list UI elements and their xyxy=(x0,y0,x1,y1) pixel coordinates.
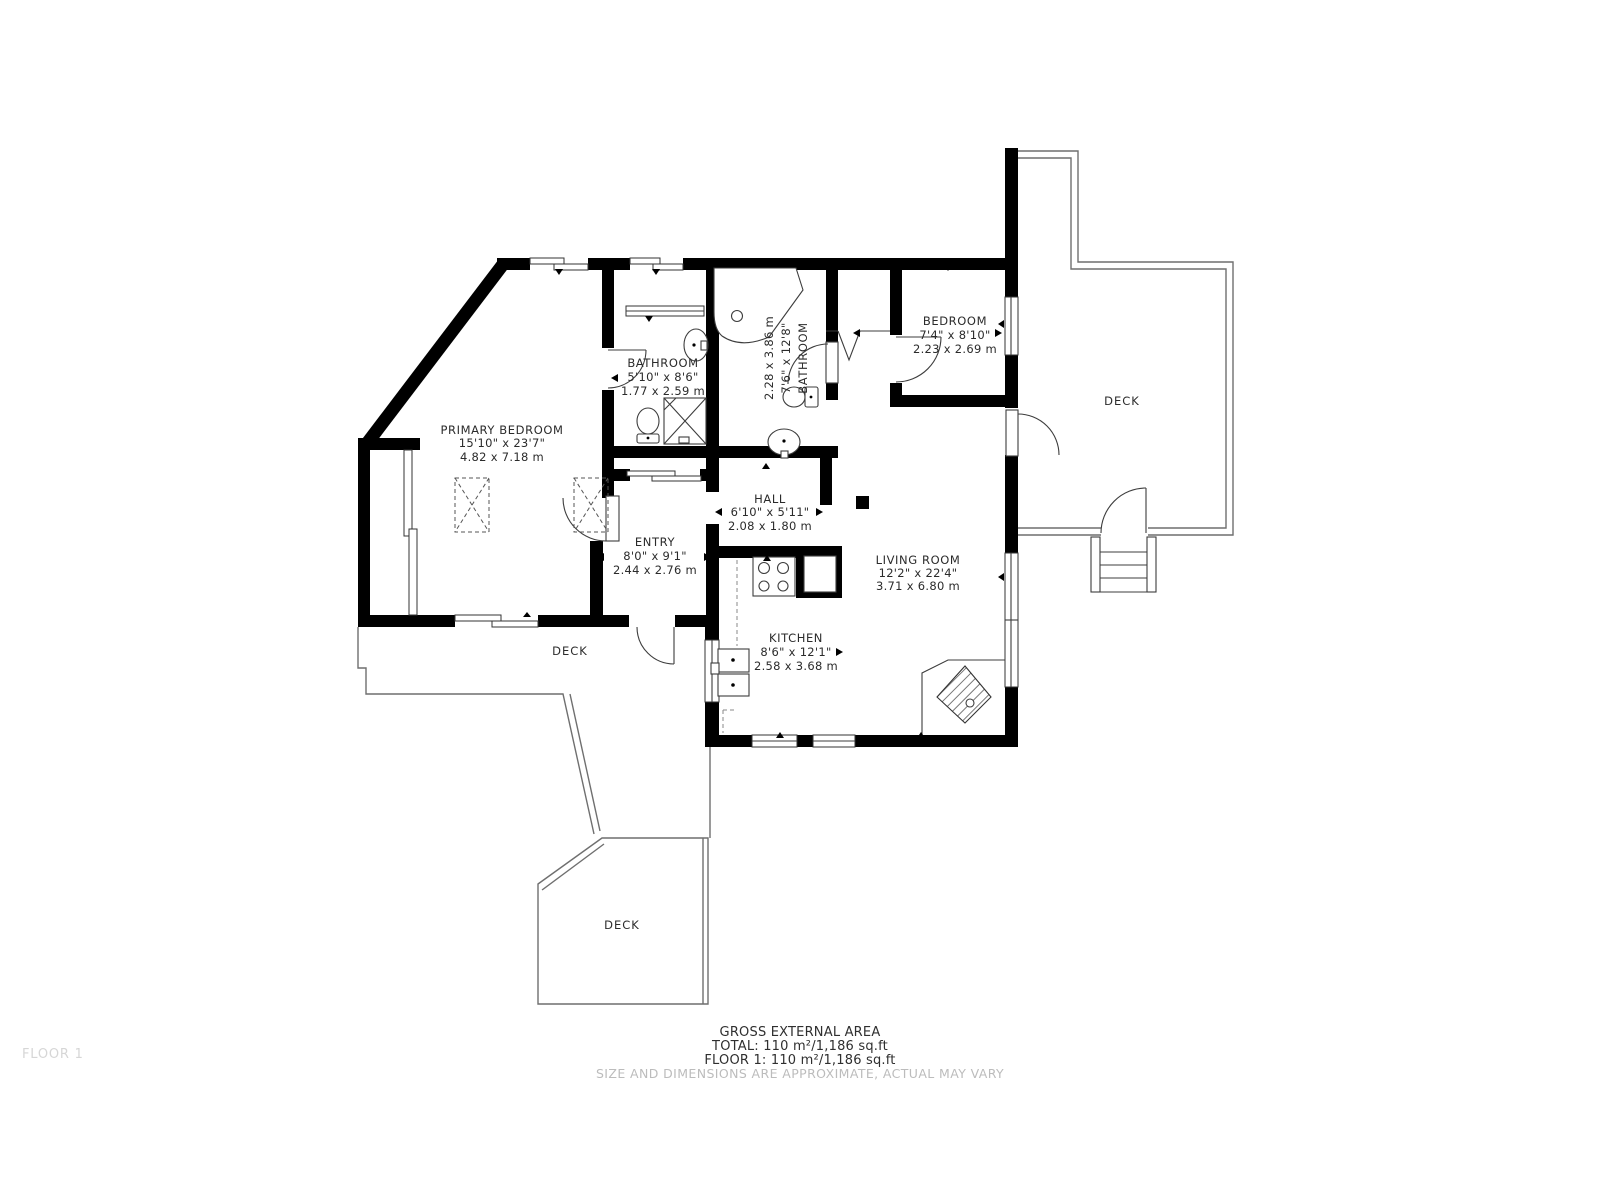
room-dims-kitchen: 8'6" x 12'1" xyxy=(760,645,831,659)
window-primary-top xyxy=(530,258,588,270)
window-primary-west-bay xyxy=(404,450,417,615)
room-label-primary-bedroom: PRIMARY BEDROOM xyxy=(440,423,563,437)
shower-icon xyxy=(664,398,706,444)
room-metric-kitchen: 2.58 x 3.68 m xyxy=(754,659,838,673)
footer-disclaimer: SIZE AND DIMENSIONS ARE APPROXIMATE, ACT… xyxy=(596,1066,1004,1081)
room-dims-primary-bedroom: 15'10" x 23'7" xyxy=(459,436,545,450)
deck-gate-door xyxy=(1101,488,1146,533)
room-label-hall: HALL xyxy=(754,492,786,506)
door-primary-bedroom xyxy=(563,496,619,541)
room-label-bathroom2: BATHROOM xyxy=(796,322,810,393)
deck-label-middle: DECK xyxy=(552,644,588,658)
stove-icon xyxy=(753,557,795,596)
window-kitchen-south-1 xyxy=(752,735,797,747)
footer-area-summary: GROSS EXTERNAL AREA TOTAL: 110 m²/1,186 … xyxy=(596,1025,1004,1081)
room-metric-primary-bedroom: 4.82 x 7.18 m xyxy=(460,450,544,464)
room-label-living-room: LIVING ROOM xyxy=(876,553,961,567)
shower-partition-icon xyxy=(626,306,704,316)
toilet-icon xyxy=(637,408,659,443)
deck-label-lower: DECK xyxy=(604,918,640,932)
window-kitchen-south-2 xyxy=(813,735,855,747)
fireplace xyxy=(922,660,1005,735)
room-metric-entry: 2.44 x 2.76 m xyxy=(613,563,697,577)
door-entry-to-deck xyxy=(637,627,674,664)
door-living-to-deck xyxy=(1006,410,1059,456)
closet-icon xyxy=(574,478,608,532)
room-dims-hall: 6'10" x 5'11" xyxy=(731,505,810,519)
room-dims-bedroom: 7'4" x 8'10" xyxy=(919,328,990,342)
chimney-column xyxy=(856,496,869,509)
room-label-bathroom1: BATHROOM xyxy=(627,356,698,370)
deck-stairs xyxy=(1091,537,1156,592)
room-metric-bathroom1: 1.77 x 2.59 m xyxy=(621,384,705,398)
sliding-door-entry xyxy=(627,471,701,481)
window-bathroom-top xyxy=(630,258,683,270)
room-label-bedroom: BEDROOM xyxy=(923,314,987,328)
window-bedroom-east xyxy=(1005,297,1018,355)
room-dims-bathroom1: 5'10" x 8'6" xyxy=(627,370,698,384)
deck-middle-outline xyxy=(358,627,710,838)
window-living-east xyxy=(1005,553,1018,687)
room-label-entry: ENTRY xyxy=(635,535,676,549)
floor-tag: FLOOR 1 xyxy=(22,1047,84,1062)
floorplan-page: PRIMARY BEDROOM 15'10" x 23'7" 4.82 x 7.… xyxy=(0,0,1600,1200)
primary-bedroom-closets xyxy=(455,478,608,532)
counter-outline xyxy=(723,560,737,733)
footer-total: TOTAL: 110 m²/1,186 sq.ft xyxy=(711,1039,888,1054)
floorplan-drawing: PRIMARY BEDROOM 15'10" x 23'7" 4.82 x 7.… xyxy=(0,0,1600,1200)
room-metric-bedroom: 2.23 x 2.69 m xyxy=(913,342,997,356)
room-metric-living-room: 3.71 x 6.80 m xyxy=(876,579,960,593)
room-dims-living-room: 12'2" x 22'4" xyxy=(879,566,958,580)
footer-heading: GROSS EXTERNAL AREA xyxy=(720,1025,881,1040)
deck-upper-outline xyxy=(1018,151,1233,535)
deck-label-upper: DECK xyxy=(1104,394,1140,408)
room-label-kitchen: KITCHEN xyxy=(769,631,823,645)
room-metric-hall: 2.08 x 1.80 m xyxy=(728,519,812,533)
room-dims-entry: 8'0" x 9'1" xyxy=(623,549,687,563)
closet-icon xyxy=(455,478,489,532)
room-dims-bathroom2: 7'6" x 12'8" xyxy=(779,322,793,393)
room-metric-bathroom2: 2.28 x 3.86 m xyxy=(762,316,776,400)
